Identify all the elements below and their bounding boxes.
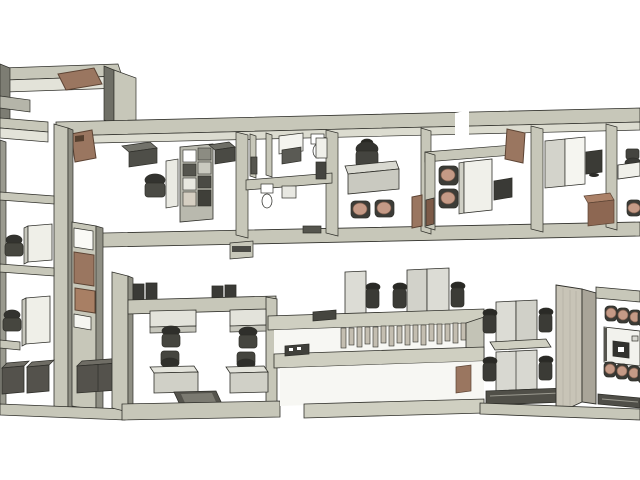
spine-wall bbox=[54, 124, 68, 410]
meeting-door-strip bbox=[426, 198, 434, 226]
cluster-panel-1b bbox=[516, 300, 537, 343]
bigroom-desk-bl-front bbox=[154, 372, 198, 393]
conference-table-item bbox=[632, 336, 638, 341]
meeting-cushion-2 bbox=[441, 192, 455, 204]
roomA-wallbox-front bbox=[215, 147, 235, 164]
topleft-left-wall bbox=[0, 64, 10, 126]
doorwall-door-2 bbox=[75, 288, 95, 313]
leftcol-chair1-seat bbox=[5, 243, 23, 256]
leftcol-divider-3 bbox=[0, 340, 20, 350]
roomE-cabinet-left bbox=[545, 139, 565, 188]
bigroom-monitor-1a bbox=[133, 284, 144, 301]
conference-cushion-b1 bbox=[605, 364, 615, 374]
conference-screen-dot bbox=[618, 347, 624, 352]
conference-table-edge bbox=[604, 328, 607, 361]
wall-protrusion-stripe bbox=[232, 246, 251, 252]
wc-sink-2 bbox=[282, 186, 296, 198]
roomF-tan-cushion bbox=[628, 203, 640, 213]
cluster-chair-1 bbox=[483, 315, 496, 333]
leftcol-desk1 bbox=[28, 224, 52, 262]
counter-tray-b-dot1 bbox=[289, 348, 293, 351]
wc-toilet2-bowl bbox=[262, 194, 272, 208]
counter-slat-14 bbox=[445, 324, 450, 341]
roomA-shelf-cell-5 bbox=[183, 178, 196, 190]
wc-sink-base bbox=[282, 147, 301, 164]
cubicle-chair-1 bbox=[366, 289, 379, 308]
roomA-shelf-cell-3 bbox=[183, 164, 196, 176]
conference-cushion-t1 bbox=[606, 308, 616, 318]
roomA-shelf-cell-4 bbox=[198, 162, 211, 174]
roomE-monitor bbox=[586, 150, 602, 174]
counter-slat-16 bbox=[461, 323, 466, 340]
cluster-chair-2 bbox=[539, 314, 552, 332]
bigroom-desk-br-front bbox=[230, 372, 268, 393]
roomE-cabinet-right bbox=[565, 137, 585, 186]
wc-partition-2 bbox=[266, 133, 272, 177]
cubicle-panel-1 bbox=[345, 271, 366, 318]
cluster-panel-1a bbox=[496, 301, 516, 344]
leftcol-desk2 bbox=[26, 296, 50, 344]
leftcol-desk2-side bbox=[22, 298, 26, 346]
wc-stall-door bbox=[251, 157, 257, 174]
counter-slat-1 bbox=[341, 328, 346, 348]
counter-tray-a bbox=[313, 310, 336, 321]
bigroom-desk-tr bbox=[230, 309, 266, 326]
ceo-guest-cushion-2 bbox=[377, 202, 391, 214]
doorwall-white-cell-2 bbox=[74, 314, 91, 330]
tall-wall-face bbox=[556, 285, 582, 414]
bigroom-bottom-band bbox=[122, 401, 280, 420]
cubicle-panel-2b bbox=[427, 268, 449, 316]
bigroom-desk-tl bbox=[150, 310, 196, 327]
ceo-door bbox=[412, 195, 422, 228]
counter-slat-7 bbox=[389, 326, 394, 346]
leftcol-desk1-side bbox=[24, 226, 28, 264]
ceo-guest-cushion-1 bbox=[353, 203, 367, 215]
bigroom-floor-mat-inner bbox=[181, 393, 216, 403]
cluster-chair-4 bbox=[539, 362, 552, 380]
counter-brown-panel bbox=[456, 365, 471, 393]
wc-fixture-4 bbox=[316, 162, 326, 179]
counter-slat-5 bbox=[373, 327, 378, 347]
floorplan-3d-view bbox=[0, 0, 640, 480]
counter-slat-2 bbox=[349, 328, 354, 345]
bigroom-chair-tl-seat bbox=[162, 334, 180, 347]
meeting-table-side bbox=[459, 162, 464, 214]
conference-cushion-b2 bbox=[617, 366, 627, 376]
conference-cushion-b3 bbox=[629, 368, 639, 378]
cubicle-chair-2 bbox=[393, 289, 406, 308]
counter-slat-10 bbox=[413, 325, 418, 342]
meeting-cushion-1 bbox=[441, 169, 455, 181]
counter-slat-4 bbox=[365, 327, 370, 344]
counter-slat-11 bbox=[421, 325, 426, 345]
meeting-table-top bbox=[464, 159, 492, 213]
leftcol-chair2-seat bbox=[3, 318, 21, 331]
roomA-shelf-cell-1 bbox=[183, 150, 196, 162]
roomE-sofa-front bbox=[588, 200, 614, 226]
counter-slat-6 bbox=[381, 326, 386, 343]
roomA-desk-panel bbox=[166, 159, 178, 208]
counter-slat-13 bbox=[437, 324, 442, 344]
meeting-wall-screen bbox=[494, 178, 512, 200]
roomF-shelf bbox=[618, 162, 640, 179]
counter-slat-8 bbox=[397, 326, 402, 343]
counter-slat-9 bbox=[405, 325, 410, 345]
roomA-chair-seat bbox=[145, 183, 165, 197]
bigroom-left-wall bbox=[112, 272, 128, 412]
conference-cushion-t2 bbox=[618, 310, 628, 320]
cluster-floor-strip bbox=[486, 388, 566, 405]
leftcol-cabinet2 bbox=[27, 365, 49, 393]
wc-fixture-3 bbox=[316, 138, 327, 158]
counter-slat-12 bbox=[429, 324, 434, 341]
roomA-door-notch bbox=[75, 135, 84, 142]
meeting-open-door bbox=[505, 129, 525, 163]
wc-toilet2-tank bbox=[261, 184, 273, 193]
doorwall-white-cell-1 bbox=[74, 228, 93, 250]
roomA-shelf-cell-7 bbox=[183, 192, 196, 206]
toprow-door-gap bbox=[455, 110, 469, 139]
wall-v5 bbox=[531, 126, 543, 232]
floorplan-svg bbox=[0, 0, 640, 480]
cluster-chair-3 bbox=[483, 363, 496, 381]
roomA-shelf-cell-8 bbox=[198, 190, 211, 206]
tall-wall-side bbox=[582, 289, 596, 404]
roomA-shelf-cell-2 bbox=[198, 148, 211, 160]
cubicle-chair-3 bbox=[451, 288, 464, 307]
counter-face-bc bbox=[280, 361, 484, 406]
roomA-wall-door bbox=[71, 130, 96, 162]
leftcol-cabinet1 bbox=[2, 366, 24, 394]
doorwall-door-1 bbox=[74, 252, 94, 286]
topleft-right-wall-side bbox=[104, 66, 114, 124]
wc-floor-mat bbox=[303, 226, 321, 233]
bigroom-monitor-1b bbox=[146, 283, 157, 300]
cubicle-panel-2a bbox=[407, 269, 427, 317]
counter-slat-3 bbox=[357, 327, 362, 347]
bigroom-left-wall-edge bbox=[128, 276, 133, 414]
counter-slat-15 bbox=[453, 323, 458, 343]
roomA-shelf-cell-6 bbox=[198, 176, 211, 188]
counter-tray-b-dot2 bbox=[297, 347, 301, 350]
roomE-monitor-base bbox=[589, 173, 599, 177]
cluster-panel-2 bbox=[496, 350, 537, 391]
bigroom-chair-tr-seat bbox=[239, 335, 257, 348]
roomF-chair-seat bbox=[626, 149, 639, 159]
